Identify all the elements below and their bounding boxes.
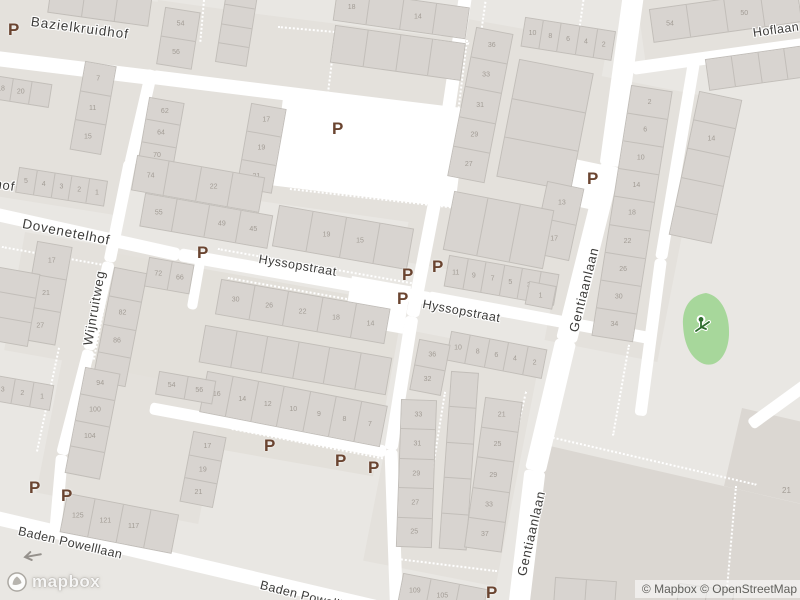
house-number: 14	[708, 135, 716, 142]
park-area	[678, 290, 734, 368]
house-number: 5	[24, 178, 28, 185]
house-number: 2	[77, 186, 81, 193]
building: 56	[157, 36, 195, 68]
building	[363, 31, 400, 71]
building	[115, 0, 151, 26]
house-number: 29	[489, 471, 497, 478]
house-number: 94	[96, 380, 104, 387]
building	[454, 585, 486, 600]
building	[732, 53, 762, 86]
building: 25	[478, 428, 518, 463]
building	[396, 35, 433, 75]
house-number: 1	[40, 393, 44, 400]
parking-icon: P	[332, 120, 343, 138]
house-number: 25	[494, 441, 502, 448]
house-number: 29	[471, 131, 479, 138]
building	[331, 26, 368, 66]
house-number: 1	[95, 189, 99, 196]
house-number: 15	[84, 134, 92, 141]
house-number: 49	[218, 220, 226, 227]
building-row: 3331292725	[397, 400, 436, 547]
building: 29	[399, 459, 434, 490]
house-number: 20	[17, 88, 25, 95]
building	[445, 443, 473, 480]
parking-icon: P	[335, 452, 346, 470]
building	[227, 173, 264, 212]
building: 21	[482, 398, 522, 433]
house-number: 55	[155, 209, 163, 216]
building: 56	[184, 377, 215, 403]
building: 14	[400, 0, 437, 34]
building: 2	[594, 29, 615, 59]
house-number: 2	[533, 359, 537, 366]
house-number: 1	[539, 292, 543, 299]
house-number: 17	[262, 117, 270, 124]
building: 31	[400, 429, 435, 460]
house-number: 10	[454, 344, 462, 351]
house-number: 14	[366, 320, 374, 327]
building: 33	[469, 488, 509, 523]
house-number: 18	[628, 210, 636, 217]
building: 1	[31, 383, 54, 410]
parking-icon: P	[402, 266, 413, 284]
house-number: 34	[611, 321, 619, 328]
house-number: 4	[514, 355, 518, 362]
parking-icon: P	[432, 258, 443, 276]
house-number: 54	[168, 382, 176, 389]
house-number: 36	[428, 351, 436, 358]
parking-icon: P	[61, 487, 72, 505]
house-number: 7	[490, 275, 494, 282]
house-number: 14	[414, 13, 422, 20]
parking-icon: P	[587, 170, 598, 188]
parking-icon: P	[264, 437, 275, 455]
house-number: 86	[113, 338, 121, 345]
building	[585, 580, 616, 600]
house-number: 30	[615, 293, 623, 300]
mapbox-logo-icon	[6, 571, 28, 593]
building: 14	[351, 304, 390, 343]
parcel-boundary-path	[612, 345, 630, 436]
building	[706, 56, 736, 89]
house-number: 18	[0, 85, 5, 92]
building	[428, 40, 464, 80]
house-number: 15	[356, 237, 364, 244]
house-number: 21	[42, 290, 50, 297]
building: 27	[398, 488, 433, 519]
house-number: 100	[89, 407, 101, 414]
house-number: 4	[584, 38, 588, 45]
house-number: 50	[740, 9, 748, 16]
house-number: 6	[495, 351, 499, 358]
house-number: 33	[482, 72, 490, 79]
house-number: 22	[210, 183, 218, 190]
building	[442, 478, 470, 515]
house-number: 117	[128, 523, 139, 530]
building	[374, 224, 413, 269]
house-number: 17	[204, 443, 212, 450]
house-number: 19	[199, 466, 207, 473]
building	[447, 407, 475, 444]
building: 54	[650, 5, 691, 42]
house-number: 33	[485, 501, 493, 508]
building: 15	[71, 120, 106, 153]
mapbox-logo[interactable]: mapbox	[6, 571, 100, 593]
building	[144, 510, 178, 553]
oneway-arrow-icon	[19, 548, 43, 564]
house-number: 14	[238, 396, 246, 403]
house-number: 22	[624, 238, 632, 245]
house-number: 6	[566, 35, 570, 42]
house-number: 66	[176, 274, 184, 281]
building	[440, 513, 468, 549]
building: 54	[156, 372, 188, 399]
house-number: 30	[231, 296, 239, 303]
building: 105	[426, 579, 459, 600]
building	[450, 372, 478, 409]
parking-icon: P	[8, 21, 19, 39]
house-number: 104	[84, 433, 96, 440]
house-number: 10	[528, 30, 536, 37]
house-number: 45	[250, 226, 258, 233]
house-number: 10	[637, 155, 645, 162]
house-number: 72	[154, 270, 162, 277]
building	[355, 353, 391, 394]
house-number: 2	[602, 41, 606, 48]
house-number: 8	[343, 415, 347, 422]
house-number: 19	[322, 231, 330, 238]
house-number: 56	[196, 387, 204, 394]
house-number: 4	[42, 180, 46, 187]
house-number: 109	[409, 587, 421, 594]
house-number: 16	[213, 391, 221, 398]
mapbox-logo-text: mapbox	[32, 572, 100, 592]
house-number: 37	[481, 531, 489, 538]
house-number: 62	[161, 108, 169, 115]
house-number: 36	[488, 42, 496, 49]
building: 18	[334, 0, 371, 24]
building	[433, 4, 469, 38]
house-number: 18	[333, 314, 341, 321]
building: 45	[236, 211, 272, 248]
house-number: 8	[475, 348, 479, 355]
house-number: 54	[177, 21, 185, 28]
house-number: 54	[666, 20, 674, 27]
house-number: 26	[619, 266, 627, 273]
house-number: 22	[299, 308, 307, 315]
house-number: 13	[558, 200, 566, 207]
house-number: 82	[119, 309, 127, 316]
parking-icon: P	[29, 479, 40, 497]
map-canvas[interactable]: mapbox © Mapbox © OpenStreetMap 54566264…	[0, 0, 800, 600]
building: 2	[523, 347, 546, 378]
house-number: 74	[147, 172, 155, 179]
house-number: 8	[548, 33, 552, 40]
area-number-label: 21	[782, 486, 791, 495]
parking-icon: P	[486, 584, 497, 600]
building: 109	[399, 574, 432, 600]
building: 37	[465, 518, 505, 552]
house-number: 64	[157, 130, 165, 137]
parking-icon: P	[368, 459, 379, 477]
house-number: 18	[348, 4, 356, 11]
building	[758, 49, 788, 82]
house-number: 105	[437, 592, 449, 599]
house-number: 27	[37, 322, 45, 329]
building-row: 321	[0, 376, 53, 410]
house-number: 25	[410, 529, 418, 536]
building: 29	[473, 458, 513, 493]
parking-icon: P	[197, 244, 208, 262]
house-number: 21	[498, 411, 506, 418]
house-number: 5	[509, 278, 513, 285]
house-number: 32	[424, 376, 432, 383]
house-number: 19	[258, 145, 266, 152]
house-number: 33	[415, 411, 423, 418]
house-number: 9	[472, 272, 476, 279]
house-number: 27	[465, 161, 473, 168]
building: 25	[397, 518, 432, 548]
house-number: 29	[413, 470, 421, 477]
map-attribution[interactable]: © Mapbox © OpenStreetMap	[635, 580, 800, 598]
house-number: 11	[89, 104, 96, 111]
street-label-hof: hof	[0, 176, 16, 194]
building: 33	[401, 400, 436, 431]
house-number: 3	[1, 386, 5, 393]
house-number: 11	[452, 269, 459, 276]
house-number: 27	[412, 499, 420, 506]
house-number: 7	[96, 75, 100, 82]
house-number: 21	[195, 489, 203, 496]
house-number: 125	[72, 512, 84, 519]
house-number: 2	[648, 99, 652, 106]
house-number: 17	[48, 257, 56, 264]
house-number: 14	[633, 182, 641, 189]
building	[367, 0, 404, 29]
building	[687, 0, 728, 37]
building: 1	[526, 282, 556, 309]
house-number: 31	[476, 102, 484, 109]
house-number: 26	[265, 302, 273, 309]
building-row	[554, 578, 616, 600]
house-number: 31	[414, 441, 422, 448]
house-number: 6	[643, 127, 647, 134]
house-number: 56	[172, 49, 180, 56]
building	[554, 578, 586, 600]
house-number: 2	[21, 389, 25, 396]
house-number: 70	[153, 152, 161, 159]
building-row: 1	[526, 282, 556, 309]
building	[29, 82, 51, 107]
house-number: 17	[550, 235, 558, 242]
house-number: 3	[60, 183, 64, 190]
house-number: 7	[369, 420, 373, 427]
house-number: 9	[317, 410, 321, 417]
parking-icon: P	[397, 290, 408, 308]
house-number: 12	[264, 401, 272, 408]
house-number: 121	[100, 517, 112, 524]
house-number: 10	[290, 405, 298, 412]
